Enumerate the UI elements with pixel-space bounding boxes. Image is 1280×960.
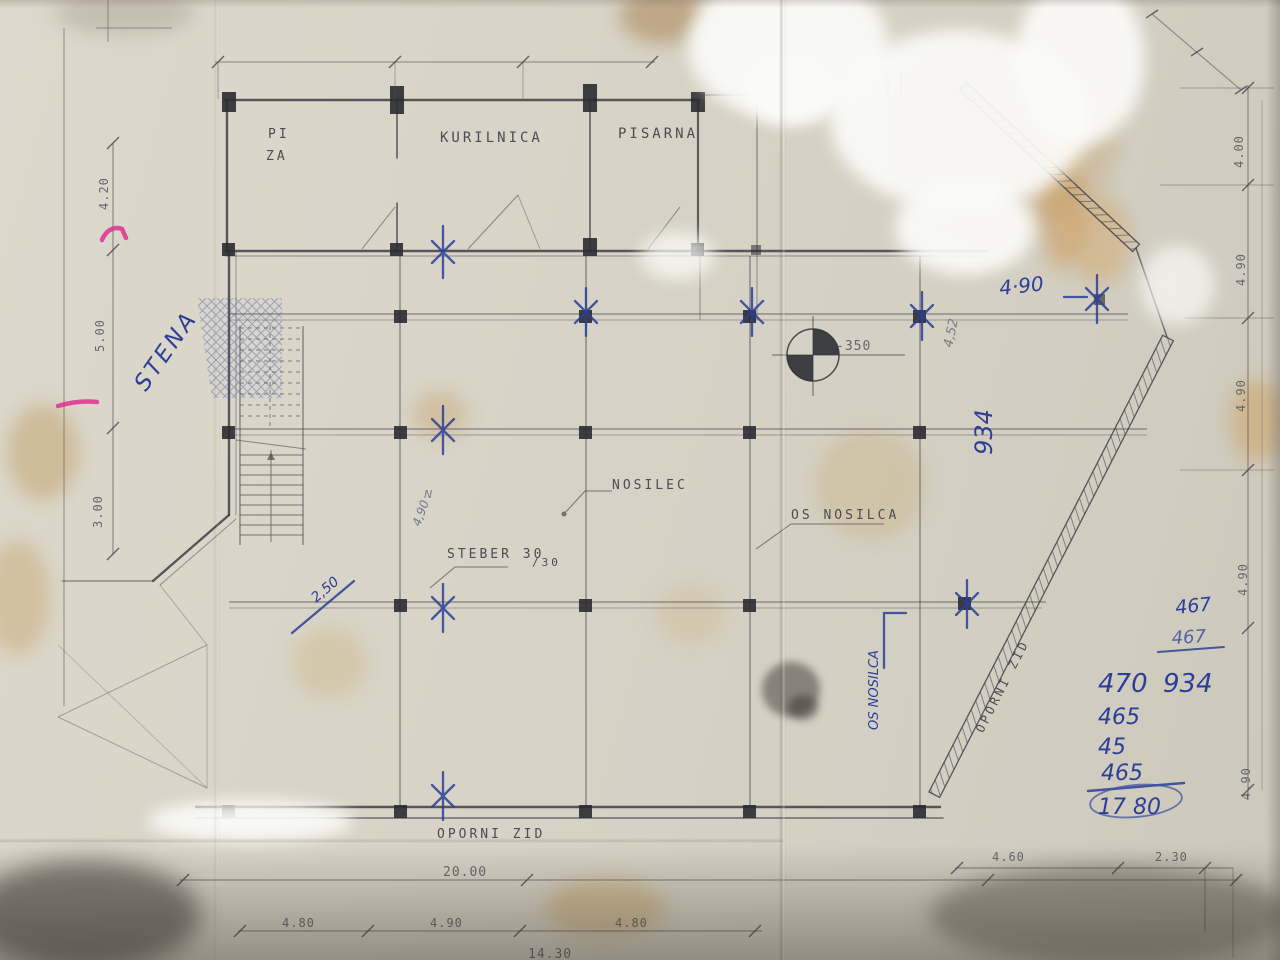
calc-item-470: 470 (1098, 669, 1148, 699)
dim-left-1: 4.20 (97, 177, 111, 210)
calc-sum-934: 934 (1163, 669, 1213, 699)
handwriting-452: 4,52 (941, 317, 962, 348)
handwriting-250: 2,50 (308, 574, 342, 606)
dim-bottom-3: 4.80 (615, 916, 648, 930)
handwriting-os-nosilca-vertical: OS NOSILCA (867, 650, 882, 730)
dim-total-width: 20.00 (443, 865, 487, 880)
calc-addend-1: 467 (1174, 593, 1212, 619)
scanned-floor-plan: -350 (0, 0, 1280, 960)
dim-right-3: 4.90 (1234, 379, 1248, 412)
calc-item-465b: 465 (1101, 761, 1143, 786)
beam-label-nosilec: NOSILEC (612, 478, 688, 493)
dim-bottom-right-2: 2.30 (1155, 850, 1188, 864)
floor-plan-drawing: -350 (0, 0, 1280, 960)
retaining-wall-label-bottom: OPORNI ZID (437, 827, 545, 842)
dim-right-2: 4.90 (1234, 253, 1248, 286)
handwriting-n-mark: N (424, 488, 432, 501)
room-label-kurilnica: KURILNICA (440, 130, 543, 146)
beam-axis-label: OS NOSILCA (791, 508, 899, 523)
level-datum-icon: -350 (772, 316, 905, 396)
pink-marker-strokes (58, 228, 126, 406)
blue-pen-marks (292, 226, 1224, 821)
blue-crosshatch-scribble (197, 298, 282, 398)
dim-right-1: 4.00 (1232, 135, 1246, 168)
column-label-steber: STEBER 30 (447, 547, 544, 562)
handwriting-490-small: 4,90 (410, 498, 432, 528)
wall-lines (62, 95, 1167, 818)
dim-left-2: 5.00 (93, 319, 107, 352)
dim-bottom-1: 4.80 (282, 916, 315, 930)
calc-item-45: 45 (1098, 735, 1126, 760)
handwriting-stena: STENA (129, 306, 203, 396)
handwriting-490: 4·90 (998, 271, 1045, 300)
calc-addend-2: 467 (1171, 626, 1207, 649)
beam-axis-lines (229, 251, 1147, 807)
room-label-line1: PI (268, 127, 290, 142)
dim-bottom-right-1: 4.60 (992, 850, 1025, 864)
level-value: -350 (836, 339, 871, 354)
hatched-wall-top-right (960, 82, 1140, 251)
room-label-line2: ZA (266, 149, 288, 164)
dim-left-3: 3.00 (91, 495, 105, 528)
label-leaders (430, 491, 884, 588)
room-label-pisarna: PISARNA (618, 126, 698, 142)
dim-bottom-clipped: 14.30 (528, 947, 572, 960)
door-swings (362, 195, 680, 249)
dim-right-4: 4.90 (1236, 563, 1250, 596)
handwriting-934-vertical: 934 (970, 409, 998, 455)
dim-bottom-2: 4.90 (430, 916, 463, 930)
dim-right-5: 4.90 (1239, 767, 1253, 800)
column-size-label: /30 (532, 556, 561, 569)
calc-total-1780: 17 80 (1098, 795, 1161, 820)
calc-item-465a: 465 (1098, 705, 1140, 730)
